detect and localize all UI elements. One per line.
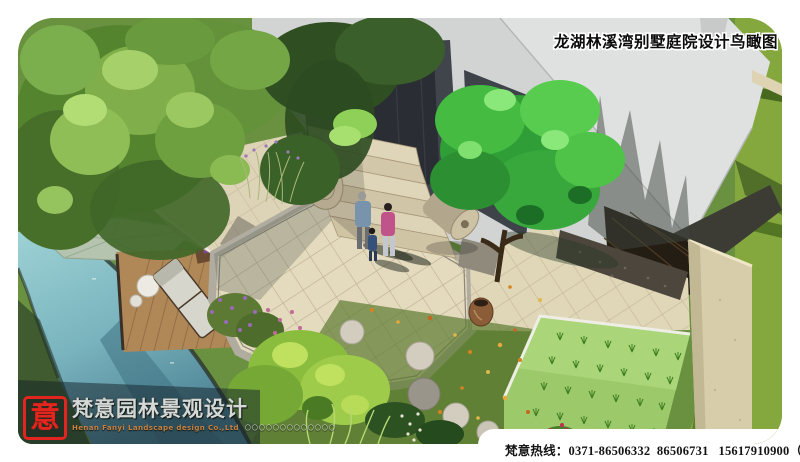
company-logo: 意 梵意园林景观设计 Henan Fanyi Landscape design … — [23, 396, 336, 442]
poster-page: 龙湖林溪湾别墅庭院设计鸟瞰图 意 梵意园林景观设计 Henan Fanyi La… — [0, 0, 800, 462]
planted-bed — [504, 316, 690, 444]
company-name-cn: 梵意园林景观设计 — [72, 396, 336, 422]
company-name-en: Henan Fanyi Landscape design Co.,Ltd — [72, 424, 239, 432]
hotline-text: 梵意热线：0371-86506332 86506731 15617910900（… — [505, 440, 800, 459]
logo-subline: Henan Fanyi Landscape design Co.,Ltd 〇〇〇… — [72, 423, 336, 432]
page-title: 龙湖林溪湾别墅庭院设计鸟瞰图 — [538, 30, 778, 52]
scene-rendering — [18, 18, 782, 444]
logo-decorative-dots: 〇〇〇〇〇〇〇〇〇〇〇〇〇 — [245, 423, 336, 432]
seal-character: 意 — [30, 403, 60, 433]
water-jar — [469, 298, 493, 326]
logo-text-block: 梵意园林景观设计 Henan Fanyi Landscape design Co… — [72, 396, 336, 432]
garden-wall — [688, 240, 752, 444]
company-seal-icon: 意 — [23, 396, 67, 440]
rendering-frame — [18, 18, 782, 444]
